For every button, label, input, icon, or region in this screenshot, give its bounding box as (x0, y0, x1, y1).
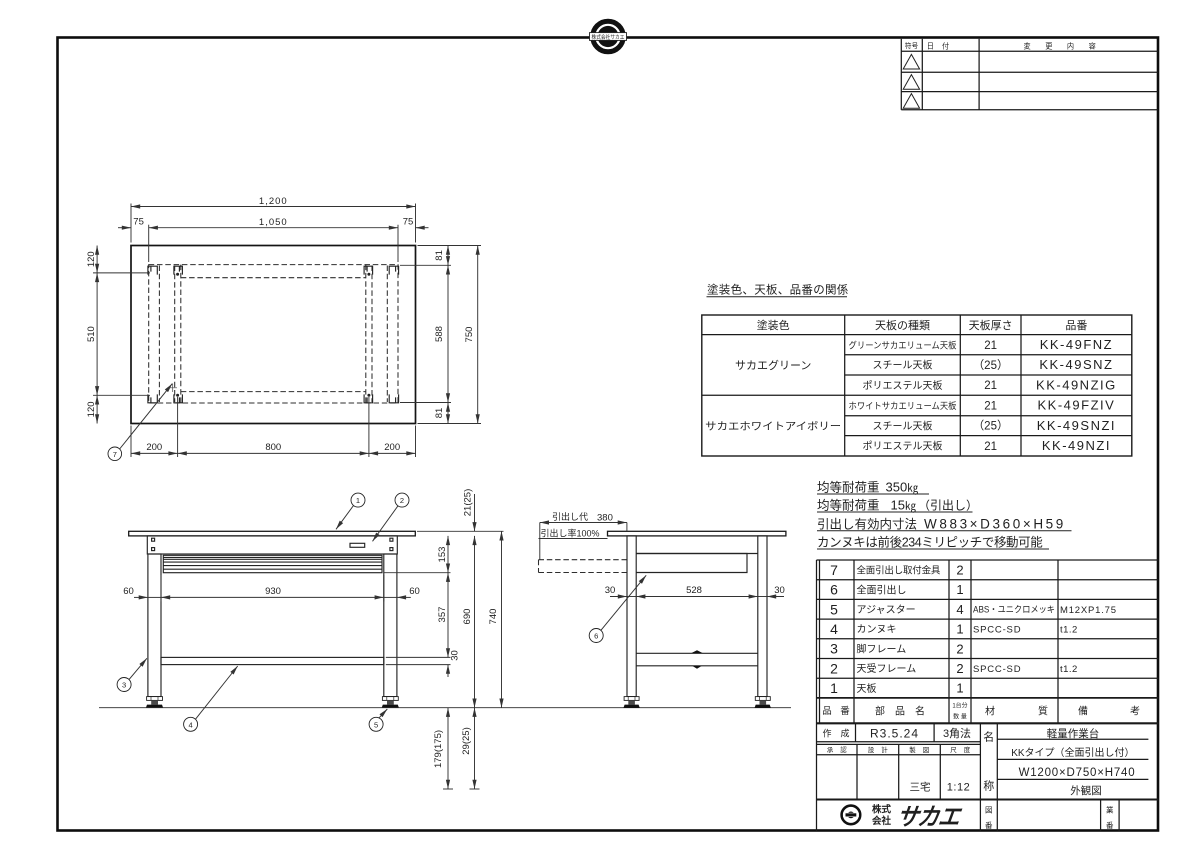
svg-text:21: 21 (984, 380, 997, 392)
svg-text:考: 考 (1130, 706, 1140, 718)
svg-text:81: 81 (434, 408, 445, 419)
svg-text:SPCC-SD: SPCC-SD (973, 664, 1021, 675)
svg-text:1,050: 1,050 (259, 217, 288, 228)
svg-text:t1.2: t1.2 (1060, 664, 1078, 675)
svg-text:品: 品 (822, 706, 832, 717)
svg-text:750: 750 (464, 327, 475, 343)
svg-text:全面引出し取付金具: 全面引出し取付金具 (857, 565, 941, 577)
svg-text:528: 528 (686, 585, 702, 596)
svg-text:備: 備 (1078, 705, 1088, 718)
svg-text:変更内容: 変更内容 (1024, 42, 1111, 51)
svg-text:称: 称 (983, 779, 994, 793)
svg-text:75: 75 (403, 217, 414, 228)
svg-text:スチール天板: スチール天板 (873, 420, 933, 433)
svg-text:均等耐荷重350㎏: 均等耐荷重350㎏ (817, 480, 918, 495)
svg-text:引出し代: 引出し代 (552, 511, 588, 522)
svg-text:塗装色: 塗装色 (757, 318, 790, 332)
svg-text:75: 75 (133, 217, 144, 228)
svg-text:全面引出し: 全面引出し (857, 583, 907, 596)
svg-text:W1200×D750×H740: W1200×D750×H740 (1019, 767, 1136, 779)
svg-text:グリーンサカエリューム天板: グリーンサカエリューム天板 (849, 340, 957, 351)
svg-text:図: 図 (985, 806, 993, 815)
svg-text:名: 名 (915, 705, 925, 718)
svg-text:1: 1 (356, 496, 360, 505)
svg-text:SPCC-SD: SPCC-SD (973, 625, 1021, 636)
svg-text:製: 製 (909, 745, 916, 754)
svg-text:60: 60 (123, 586, 134, 597)
svg-text:作: 作 (822, 728, 831, 739)
svg-text:2: 2 (400, 496, 404, 505)
svg-text:1:12: 1:12 (947, 782, 970, 794)
svg-text:R3.5.24: R3.5.24 (870, 727, 919, 741)
svg-text:ABS・ユニクロメッキ: ABS・ユニクロメッキ (973, 605, 1055, 615)
svg-text:30: 30 (774, 585, 785, 596)
svg-text:部: 部 (875, 705, 885, 718)
svg-text:KKタイプ（全面引出し付）: KKタイプ（全面引出し付） (1011, 746, 1134, 759)
svg-text:ホワイトサカエリューム天板: ホワイトサカエリューム天板 (849, 400, 957, 411)
svg-text:690: 690 (462, 609, 473, 625)
svg-text:200: 200 (146, 442, 162, 453)
svg-text:6: 6 (594, 632, 598, 641)
svg-text:外観図: 外観図 (1070, 784, 1102, 797)
svg-text:KK-49SNZ: KK-49SNZ (1039, 357, 1113, 372)
svg-text:179(175): 179(175) (433, 730, 444, 768)
svg-text:3角法: 3角法 (943, 726, 971, 740)
svg-text:（25）: （25） (973, 420, 1009, 433)
svg-text:KK-49FZIV: KK-49FZIV (1038, 398, 1116, 413)
svg-text:成: 成 (840, 728, 849, 739)
svg-text:2: 2 (956, 661, 963, 676)
svg-text:三宅: 三宅 (910, 781, 931, 794)
svg-text:930: 930 (265, 586, 281, 597)
svg-text:天板厚さ: 天板厚さ (969, 318, 1013, 332)
svg-text:塗装色、天板、品番の関係: 塗装色、天板、品番の関係 (707, 283, 849, 297)
svg-text:カンヌキ: カンヌキ (857, 624, 897, 636)
svg-text:会社: 会社 (872, 815, 892, 827)
svg-text:800: 800 (265, 442, 281, 453)
svg-text:カンヌキは前後234ミリピッチで移動可能: カンヌキは前後234ミリピッチで移動可能 (817, 534, 1043, 549)
svg-text:KK-49NZI: KK-49NZI (1042, 438, 1111, 453)
svg-text:（25）: （25） (973, 359, 1009, 372)
svg-text:度: 度 (964, 745, 971, 754)
svg-text:設: 設 (868, 745, 875, 754)
svg-text:510: 510 (86, 326, 97, 342)
svg-text:4: 4 (189, 720, 193, 729)
svg-text:2: 2 (956, 641, 963, 656)
svg-text:均等耐荷重15㎏（引出し）: 均等耐荷重15㎏（引出し） (817, 498, 978, 513)
svg-text:t1.2: t1.2 (1060, 625, 1078, 636)
svg-text:材: 材 (985, 705, 995, 718)
svg-text:ポリエステル天板: ポリエステル天板 (863, 440, 943, 453)
svg-text:153: 153 (437, 547, 448, 563)
svg-text:4: 4 (830, 621, 838, 637)
svg-text:引出し率100%: 引出し率100% (541, 527, 600, 538)
svg-text:2: 2 (956, 563, 963, 578)
svg-text:M12XP1.75: M12XP1.75 (1060, 605, 1117, 616)
svg-text:番: 番 (840, 705, 850, 717)
svg-text:3: 3 (122, 681, 126, 690)
svg-text:5: 5 (830, 601, 838, 617)
svg-text:1: 1 (956, 681, 963, 696)
svg-text:尺: 尺 (950, 746, 957, 754)
svg-text:サカエ: サカエ (895, 804, 963, 831)
svg-text:120: 120 (86, 401, 97, 417)
svg-text:天板の種類: 天板の種類 (875, 318, 930, 332)
svg-text:KK-49SNZI: KK-49SNZI (1037, 418, 1116, 433)
svg-text:天受フレーム: 天受フレーム (857, 663, 917, 675)
svg-text:サカエグリーン: サカエグリーン (735, 358, 811, 372)
svg-text:1: 1 (956, 582, 963, 597)
svg-text:7: 7 (830, 562, 838, 578)
svg-text:30: 30 (605, 585, 616, 596)
svg-text:KK-49NZIG: KK-49NZIG (1036, 377, 1117, 392)
svg-text:4: 4 (956, 602, 963, 617)
svg-text:ポリエステル天板: ポリエステル天板 (863, 379, 943, 392)
svg-text:番: 番 (1106, 820, 1114, 830)
svg-text:業: 業 (1106, 805, 1114, 815)
svg-text:2: 2 (830, 660, 838, 676)
svg-text:数 量: 数 量 (953, 713, 967, 721)
svg-text:計: 計 (881, 745, 888, 754)
svg-text:21: 21 (984, 441, 997, 453)
svg-text:1台分: 1台分 (952, 702, 967, 710)
svg-text:符号: 符号 (905, 41, 919, 50)
svg-text:KK-49FNZ: KK-49FNZ (1040, 337, 1113, 352)
svg-text:脚フレーム: 脚フレーム (857, 642, 907, 655)
svg-text:スチール天板: スチール天板 (873, 359, 933, 372)
svg-text:番: 番 (985, 820, 993, 830)
svg-text:1: 1 (956, 622, 963, 637)
svg-text:6: 6 (830, 582, 838, 598)
svg-text:740: 740 (488, 609, 499, 625)
svg-text:29(25): 29(25) (461, 727, 472, 754)
svg-text:5: 5 (374, 720, 378, 729)
svg-text:588: 588 (434, 326, 445, 342)
svg-text:380: 380 (597, 512, 613, 523)
svg-text:株式会社サカエ: 株式会社サカエ (592, 33, 625, 41)
svg-text:天板: 天板 (857, 682, 877, 695)
svg-text:21(25): 21(25) (462, 489, 473, 516)
svg-text:引出し有効内寸法W883×D360×H59: 引出し有効内寸法W883×D360×H59 (817, 516, 1066, 531)
svg-text:357: 357 (437, 607, 448, 623)
svg-text:名: 名 (983, 730, 994, 744)
svg-text:軽量作業台: 軽量作業台 (1047, 727, 1100, 740)
svg-text:質: 質 (1038, 705, 1048, 718)
svg-text:図: 図 (923, 746, 930, 754)
svg-text:1: 1 (830, 680, 838, 696)
svg-text:120: 120 (86, 251, 97, 267)
svg-text:品: 品 (895, 706, 905, 718)
svg-text:日付: 日付 (927, 42, 957, 51)
svg-text:60: 60 (409, 586, 420, 597)
svg-text:7: 7 (113, 450, 117, 459)
svg-text:81: 81 (434, 250, 445, 261)
svg-text:株式: 株式 (872, 803, 892, 815)
svg-text:品番: 品番 (1065, 319, 1087, 332)
svg-text:21: 21 (984, 340, 997, 352)
svg-text:承: 承 (827, 745, 834, 754)
svg-text:21: 21 (984, 400, 997, 412)
svg-text:200: 200 (384, 442, 400, 453)
svg-text:30: 30 (449, 650, 460, 661)
svg-text:認: 認 (840, 745, 847, 754)
svg-text:1,200: 1,200 (259, 196, 288, 207)
svg-text:3: 3 (830, 641, 838, 657)
svg-text:サカエホワイトアイボリー: サカエホワイトアイボリー (705, 421, 841, 433)
svg-text:アジャスター: アジャスター (857, 604, 916, 616)
